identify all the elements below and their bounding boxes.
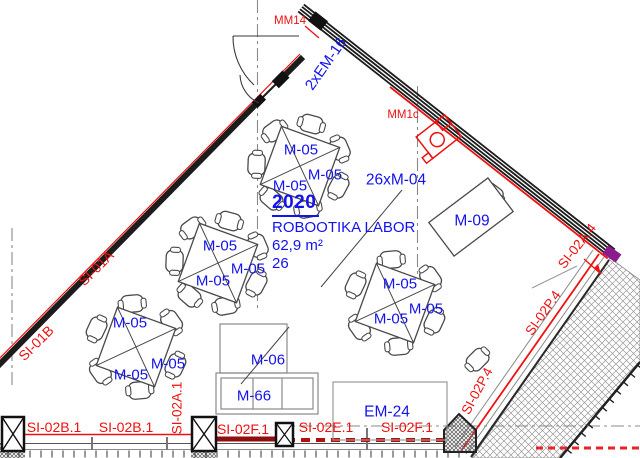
label-m-05: M-05	[308, 167, 342, 184]
label-m-05: M-05	[203, 238, 237, 255]
column-box-left	[2, 417, 24, 451]
label-m-09: M-09	[454, 213, 489, 230]
column-box-small	[276, 423, 293, 446]
label-si-02f.1: SI-02F.1	[217, 421, 269, 437]
label-si-02e.1: SI-02E.1	[299, 419, 354, 435]
column-box-mid	[192, 417, 216, 451]
wall-junction-marker	[603, 245, 622, 262]
label-m-05: M-05	[231, 261, 265, 278]
label-m-05: M-05	[383, 276, 417, 293]
room-capacity: 26	[272, 255, 415, 272]
label-2xem-16: 2xEM-16	[302, 35, 350, 94]
chair-icon	[165, 247, 183, 276]
label-si-02f.1: SI-02F.1	[381, 419, 433, 435]
label-si-02b.1: SI-02B.1	[99, 419, 154, 435]
corner-column	[444, 414, 476, 452]
room-area: 62,9 m²	[272, 237, 415, 254]
room-info-block: 2020 ROBOOTIKA LABOR 62,9 m² 26	[272, 192, 415, 273]
room-name: ROBOOTIKA LABOR	[272, 219, 415, 236]
label-26xm-04: 26xM-04	[366, 172, 427, 189]
label-m-05: M-05	[409, 301, 443, 318]
label-si-02b.1: SI-02B.1	[27, 419, 82, 435]
label-mm14: MM14	[274, 15, 307, 27]
label-m-05: M-05	[196, 273, 230, 290]
label-m-05: M-05	[114, 367, 148, 384]
label-si-01a: SI-01A	[75, 247, 117, 289]
floor-plan-screenshot: MM142xEM-16MM1c26xM-04M-09M-05M-05M-05M-…	[0, 0, 640, 458]
chair-icon	[296, 112, 327, 136]
chair-icon	[247, 150, 265, 179]
label-m-06: M-06	[251, 352, 285, 369]
label-m-05: M-05	[151, 356, 185, 373]
label-em-24: EM-24	[364, 404, 410, 421]
chair-icon	[214, 209, 245, 233]
exterior-wall-hatch	[472, 258, 640, 458]
room-number: 2020	[272, 192, 319, 217]
label-m-66: M-66	[237, 388, 271, 405]
label-si-02a.1: SI-02A.1	[170, 382, 185, 435]
label-m-05: M-05	[284, 142, 318, 159]
label-m-05: M-05	[113, 315, 147, 332]
label-m-05: M-05	[374, 311, 408, 328]
label-mm1c: MM1c	[387, 109, 419, 121]
